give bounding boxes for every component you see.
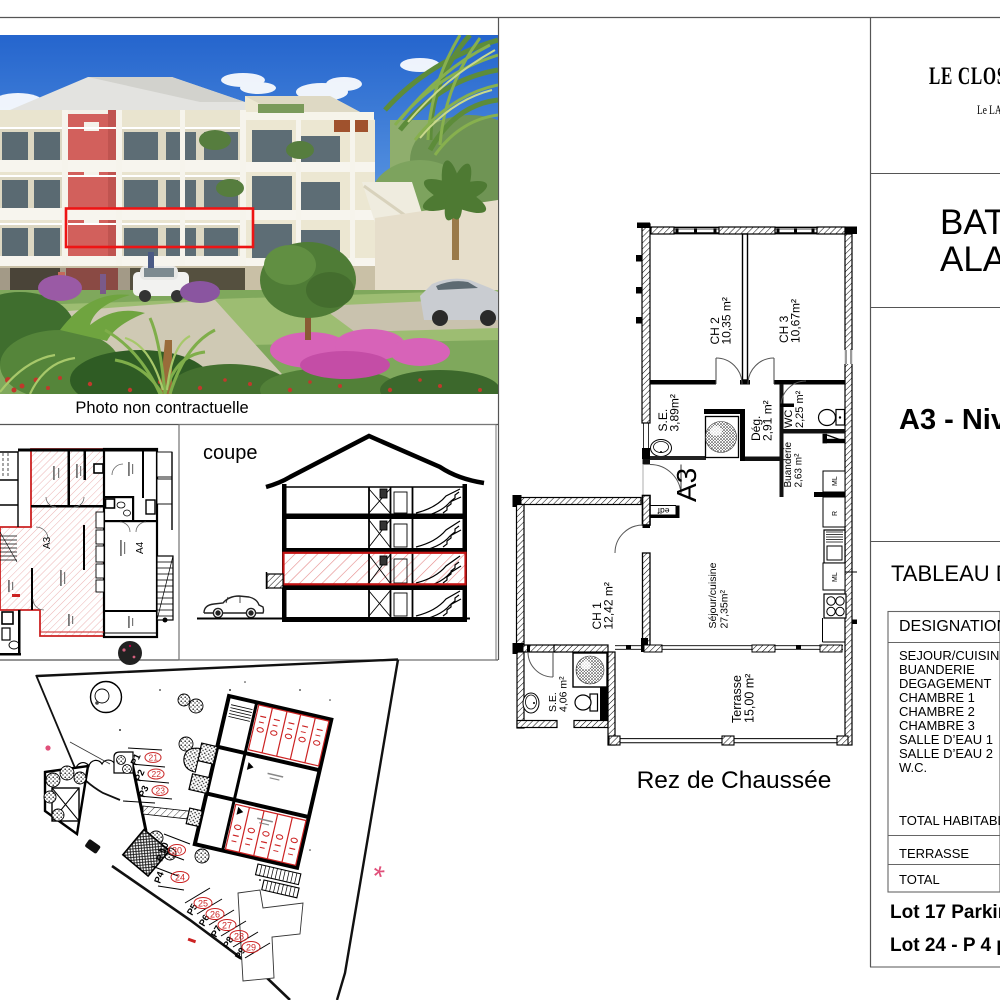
- svg-text:ML: ML: [832, 476, 839, 486]
- svg-text:4,06 m²: 4,06 m²: [558, 676, 570, 712]
- svg-text:BUANDERIE: BUANDERIE: [899, 662, 975, 677]
- svg-text:ALAMANDA: ALAMANDA: [940, 240, 1000, 279]
- svg-text:SALLE D’EAU 1: SALLE D’EAU 1: [899, 732, 993, 747]
- svg-text:A3 - Niv. 0: A3 - Niv. 0: [899, 404, 1000, 436]
- svg-text:12,42 m²: 12,42 m²: [602, 582, 616, 629]
- svg-text:R: R: [832, 511, 839, 516]
- svg-text:Lot 17 Parking: Lot 17 Parking: [890, 902, 1000, 923]
- svg-text:Rez de Chaussée: Rez de Chaussée: [637, 767, 832, 794]
- svg-text:2,63 m²: 2,63 m²: [794, 453, 805, 488]
- svg-text:27,35m²: 27,35m²: [719, 589, 731, 628]
- svg-text:3,89m²: 3,89m²: [668, 394, 682, 431]
- svg-text:SEJOUR/CUISINE: SEJOUR/CUISINE: [899, 648, 1000, 663]
- svg-text:Séjour/cuisine: Séjour/cuisine: [707, 562, 719, 628]
- svg-text:edf: edf: [657, 506, 669, 516]
- svg-text:29: 29: [246, 943, 256, 953]
- svg-text:28: 28: [234, 932, 244, 942]
- svg-text:CHAMBRE 3: CHAMBRE 3: [899, 718, 975, 733]
- svg-text:SALLE D’EAU 2: SALLE D’EAU 2: [899, 746, 993, 761]
- svg-text:23: 23: [156, 786, 166, 796]
- svg-text:Photo non contractuelle: Photo non contractuelle: [75, 399, 248, 417]
- svg-text:Le LAMENTIN: Le LAMENTIN: [977, 104, 1000, 118]
- svg-text:BATIMENT: BATIMENT: [940, 203, 1000, 242]
- svg-text:W.C.: W.C.: [899, 760, 927, 775]
- svg-text:A4: A4: [135, 541, 146, 554]
- svg-text:Lot 24 - P 4 p: Lot 24 - P 4 p: [890, 935, 1000, 956]
- svg-text:21: 21: [149, 753, 159, 763]
- svg-text:24: 24: [175, 873, 185, 883]
- svg-text:TERRASSE: TERRASSE: [899, 846, 969, 861]
- svg-text:15,00 m²: 15,00 m²: [743, 674, 757, 723]
- svg-text:A3: A3: [671, 468, 702, 502]
- svg-text:10,35 m²: 10,35 m²: [720, 297, 734, 344]
- svg-text:coupe: coupe: [203, 442, 258, 464]
- svg-text:TOTAL: TOTAL: [899, 872, 940, 887]
- svg-text:LE CLOS DES ALIZES: LE CLOS DES ALIZES: [929, 62, 1000, 90]
- svg-text:10,67m²: 10,67m²: [789, 299, 803, 343]
- svg-text:TABLEAU DES SURFACES: TABLEAU DES SURFACES: [891, 561, 1000, 586]
- svg-text:2,25 m²: 2,25 m²: [794, 390, 806, 428]
- svg-text:30: 30: [172, 846, 182, 856]
- svg-text:DEGAGEMENT: DEGAGEMENT: [899, 676, 992, 691]
- svg-text:ML: ML: [832, 572, 839, 582]
- svg-text:26: 26: [210, 910, 220, 920]
- svg-text:25: 25: [198, 899, 208, 909]
- svg-text:2,91 m²: 2,91 m²: [761, 400, 775, 441]
- svg-text:TOTAL HABITABLE: TOTAL HABITABLE: [899, 813, 1000, 828]
- svg-text:22: 22: [152, 769, 162, 779]
- svg-text:CHAMBRE 1: CHAMBRE 1: [899, 690, 975, 705]
- svg-text:DESIGNATION: DESIGNATION: [899, 618, 1000, 635]
- svg-text:CHAMBRE 2: CHAMBRE 2: [899, 704, 975, 719]
- svg-text:A3: A3: [42, 536, 53, 549]
- svg-text:Buanderie: Buanderie: [783, 441, 794, 487]
- svg-text:27: 27: [222, 921, 232, 931]
